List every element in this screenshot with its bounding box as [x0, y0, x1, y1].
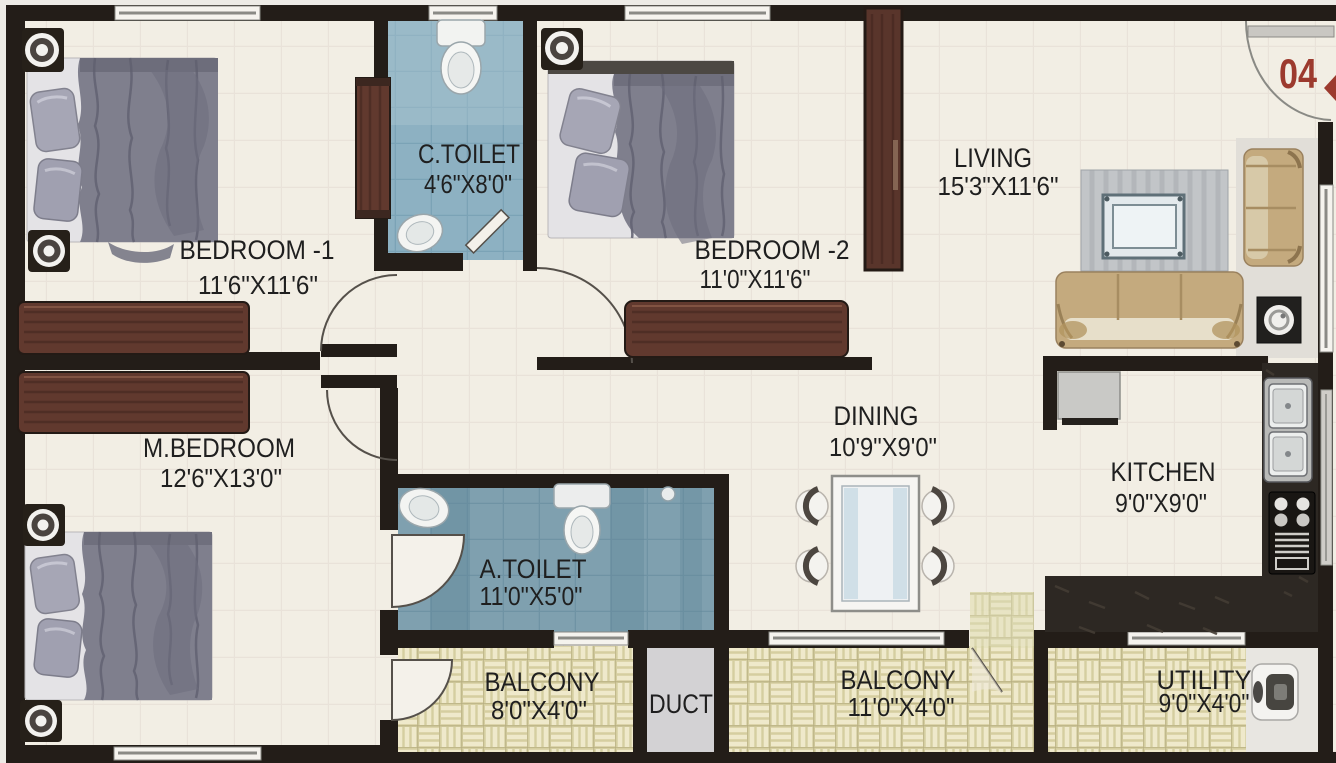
svg-text:12'6"X13'0": 12'6"X13'0" [160, 463, 282, 493]
svg-text:BALCONY: BALCONY [485, 667, 600, 697]
svg-text:4'6"X8'0": 4'6"X8'0" [424, 169, 512, 199]
svg-text:9'0"X9'0": 9'0"X9'0" [1115, 488, 1207, 518]
svg-text:15'3"X11'6": 15'3"X11'6" [938, 171, 1059, 201]
svg-text:8'0"X4'0": 8'0"X4'0" [491, 695, 587, 725]
svg-text:M.BEDROOM: M.BEDROOM [143, 433, 295, 463]
svg-text:DUCT: DUCT [649, 689, 713, 719]
svg-text:11'0"X11'6": 11'0"X11'6" [700, 264, 811, 294]
svg-text:11'0"X5'0": 11'0"X5'0" [480, 581, 583, 611]
svg-text:A.TOILET: A.TOILET [480, 554, 587, 584]
svg-text:04: 04 [1279, 50, 1318, 97]
svg-text:C.TOILET: C.TOILET [418, 139, 520, 169]
svg-text:BALCONY: BALCONY [841, 665, 956, 695]
svg-text:9'0"X4'0": 9'0"X4'0" [1159, 688, 1250, 718]
svg-text:KITCHEN: KITCHEN [1111, 457, 1216, 487]
svg-text:BEDROOM -1: BEDROOM -1 [180, 235, 335, 265]
svg-text:11'0"X4'0": 11'0"X4'0" [848, 692, 955, 722]
svg-text:10'9"X9'0": 10'9"X9'0" [829, 432, 937, 462]
svg-text:LIVING: LIVING [954, 143, 1032, 173]
svg-text:BEDROOM -2: BEDROOM -2 [695, 235, 850, 265]
svg-text:DINING: DINING [834, 401, 919, 431]
svg-text:11'6"X11'6": 11'6"X11'6" [198, 270, 318, 300]
